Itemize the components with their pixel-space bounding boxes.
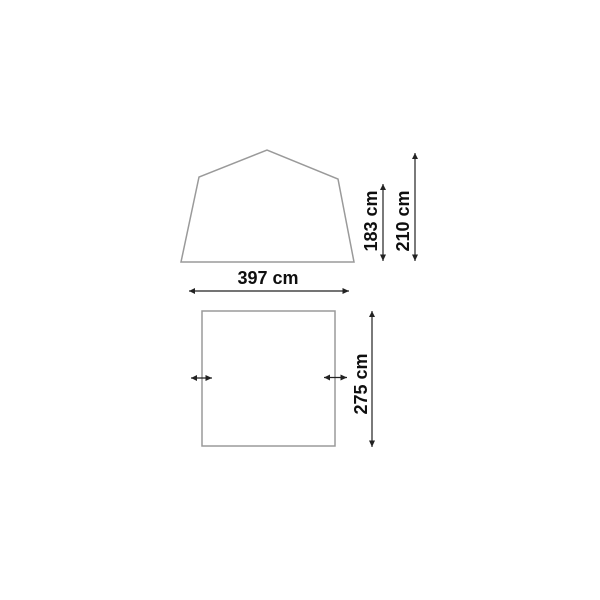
tent-front-view-outline <box>181 150 354 262</box>
width-label: 397 cm <box>237 268 298 288</box>
tent-footprint-outline <box>202 311 335 446</box>
tent-dimensions-diagram: 183 cm 210 cm 397 cm 275 cm <box>0 0 600 600</box>
diagram-canvas: 183 cm 210 cm 397 cm 275 cm <box>0 0 600 600</box>
depth-label: 275 cm <box>351 353 371 414</box>
peak-height-label: 210 cm <box>393 190 413 251</box>
wall-height-label: 183 cm <box>361 190 381 251</box>
